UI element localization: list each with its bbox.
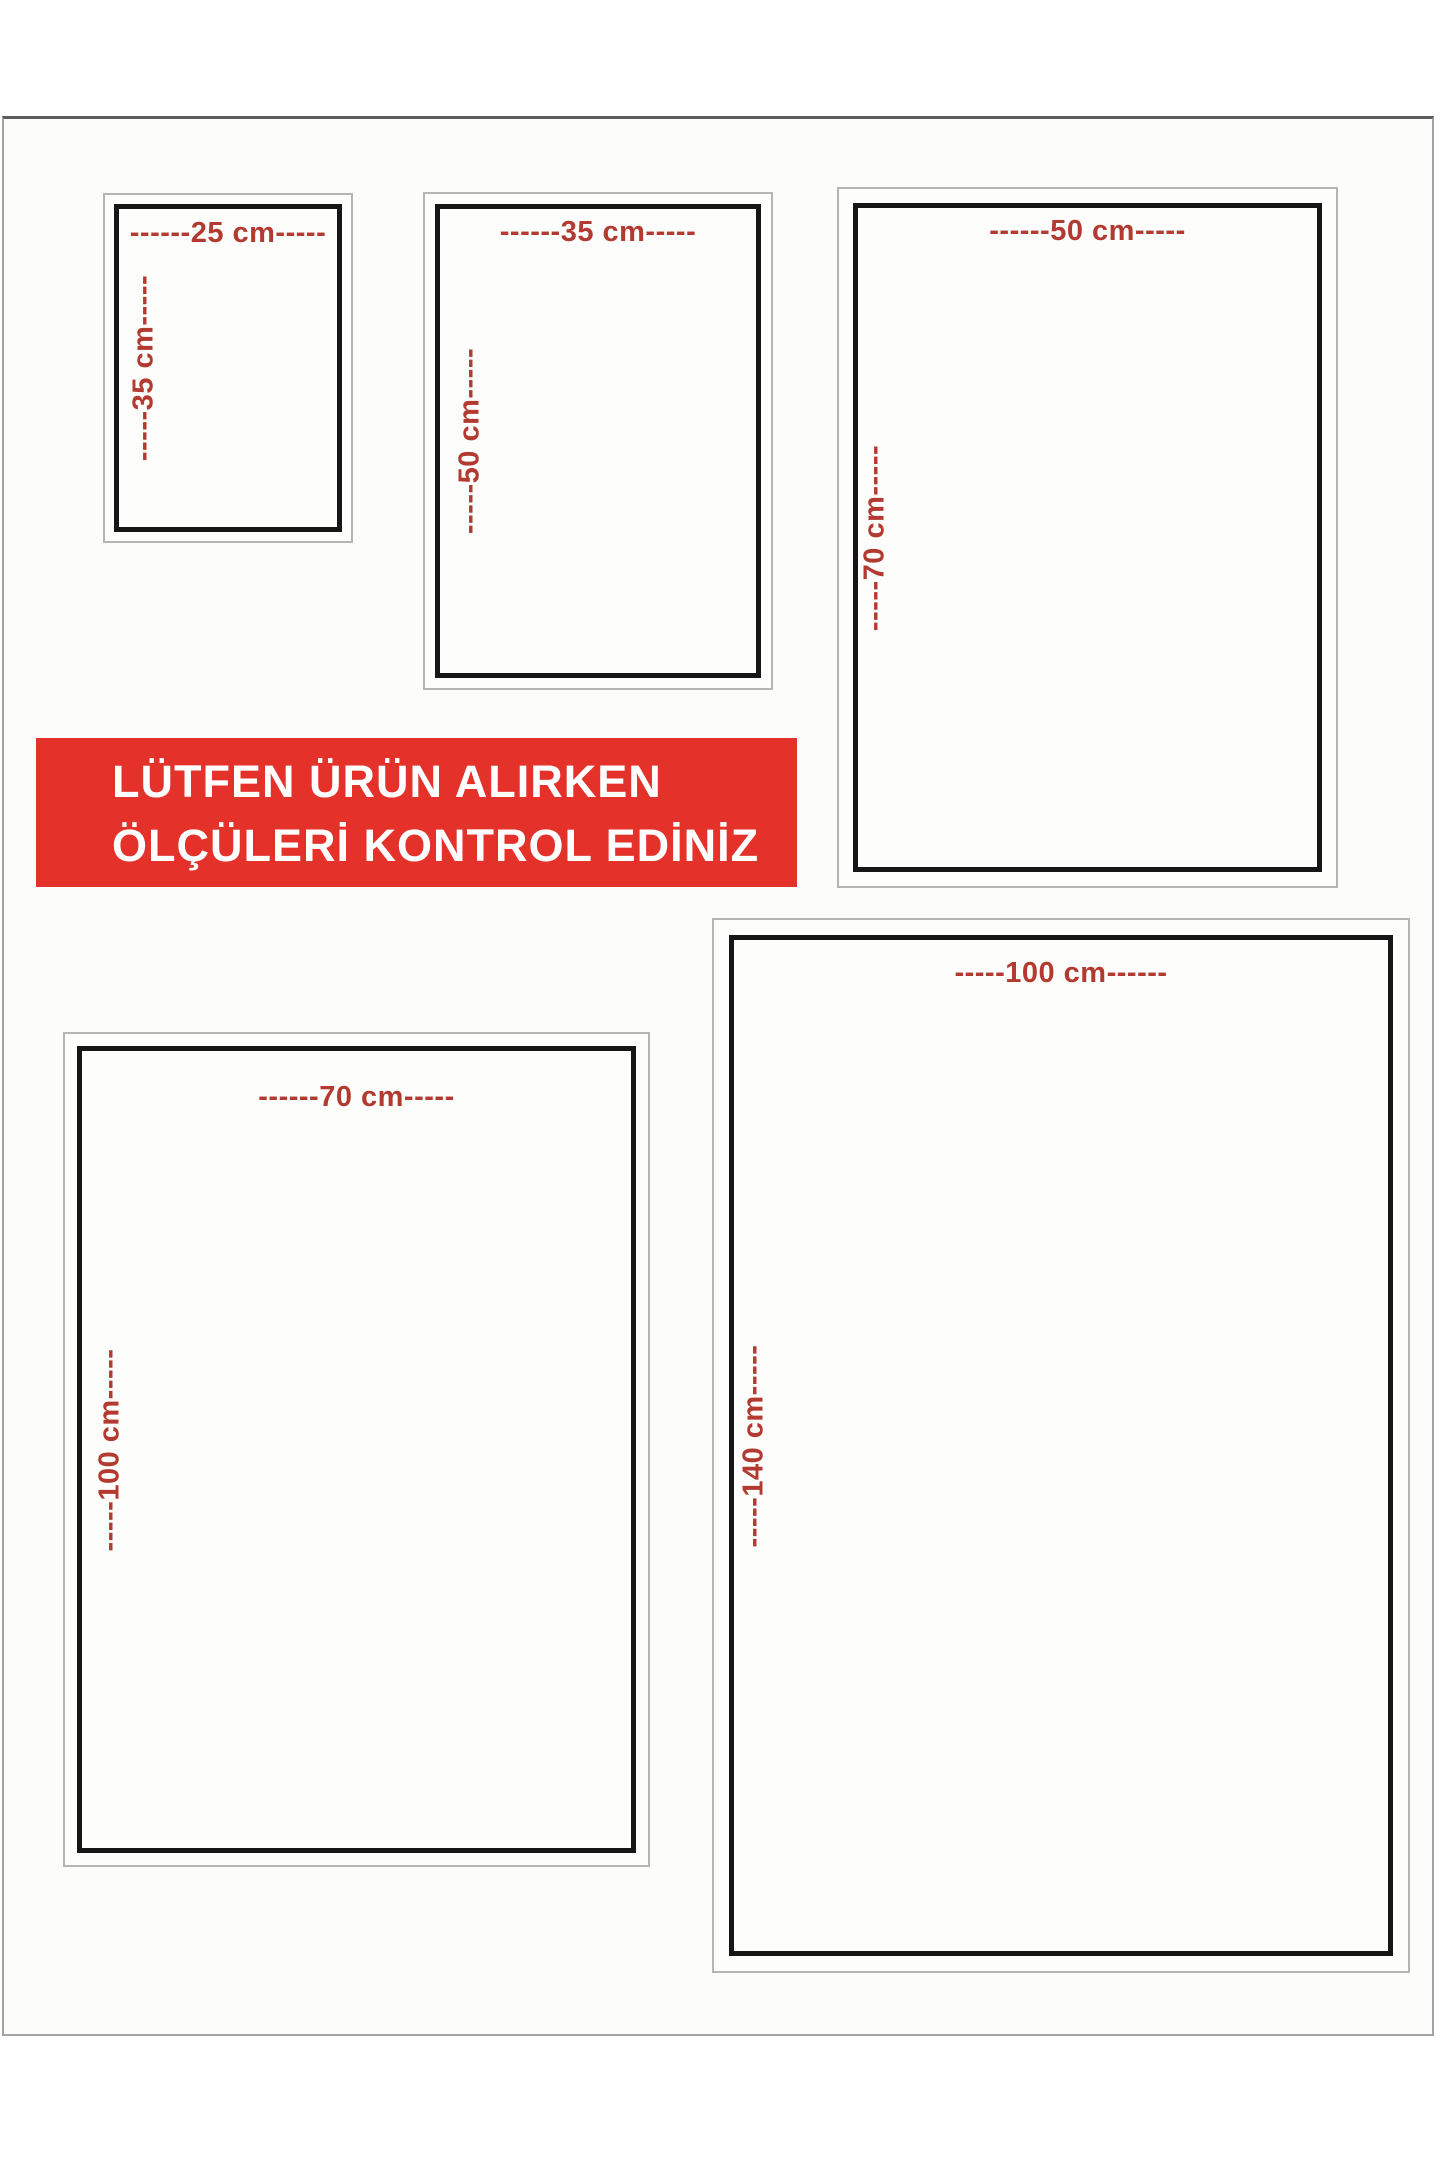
- height-dimension-label: -----70 cm-----: [859, 444, 892, 630]
- size-box-70x100: ------70 cm----- -----100 cm-----: [63, 1032, 650, 1867]
- size-box-100x140-frame: -----100 cm------ -----140 cm-----: [729, 935, 1393, 1956]
- size-box-25x35: ------25 cm----- -----35 cm-----: [103, 193, 353, 543]
- width-dimension-label: -----100 cm------: [734, 957, 1388, 990]
- height-dimension-label: -----35 cm-----: [128, 275, 161, 461]
- height-dimension-label: -----50 cm-----: [454, 348, 487, 534]
- warning-banner: LÜTFEN ÜRÜN ALIRKEN ÖLÇÜLERİ KONTROL EDİ…: [36, 738, 797, 887]
- size-box-25x35-frame: ------25 cm----- -----35 cm-----: [114, 204, 342, 532]
- warning-banner-line-2: ÖLÇÜLERİ KONTROL EDİNİZ: [112, 814, 797, 878]
- width-dimension-label: ------25 cm-----: [119, 217, 337, 250]
- width-dimension-label: ------50 cm-----: [858, 215, 1317, 248]
- size-box-50x70: ------50 cm----- -----70 cm-----: [837, 187, 1338, 888]
- width-dimension-label: ------70 cm-----: [82, 1081, 631, 1114]
- size-box-70x100-frame: ------70 cm----- -----100 cm-----: [77, 1046, 636, 1853]
- width-dimension-label: ------35 cm-----: [440, 216, 756, 249]
- height-dimension-label: -----100 cm-----: [94, 1348, 127, 1551]
- size-guide-image: ------25 cm----- -----35 cm----- ------3…: [0, 0, 1440, 2160]
- warning-banner-line-1: LÜTFEN ÜRÜN ALIRKEN: [112, 750, 797, 814]
- size-box-100x140: -----100 cm------ -----140 cm-----: [712, 918, 1410, 1973]
- size-box-35x50: ------35 cm----- -----50 cm-----: [423, 192, 773, 690]
- size-box-35x50-frame: ------35 cm----- -----50 cm-----: [435, 204, 761, 678]
- size-box-50x70-frame: ------50 cm----- -----70 cm-----: [853, 203, 1322, 872]
- height-dimension-label: -----140 cm-----: [738, 1344, 771, 1547]
